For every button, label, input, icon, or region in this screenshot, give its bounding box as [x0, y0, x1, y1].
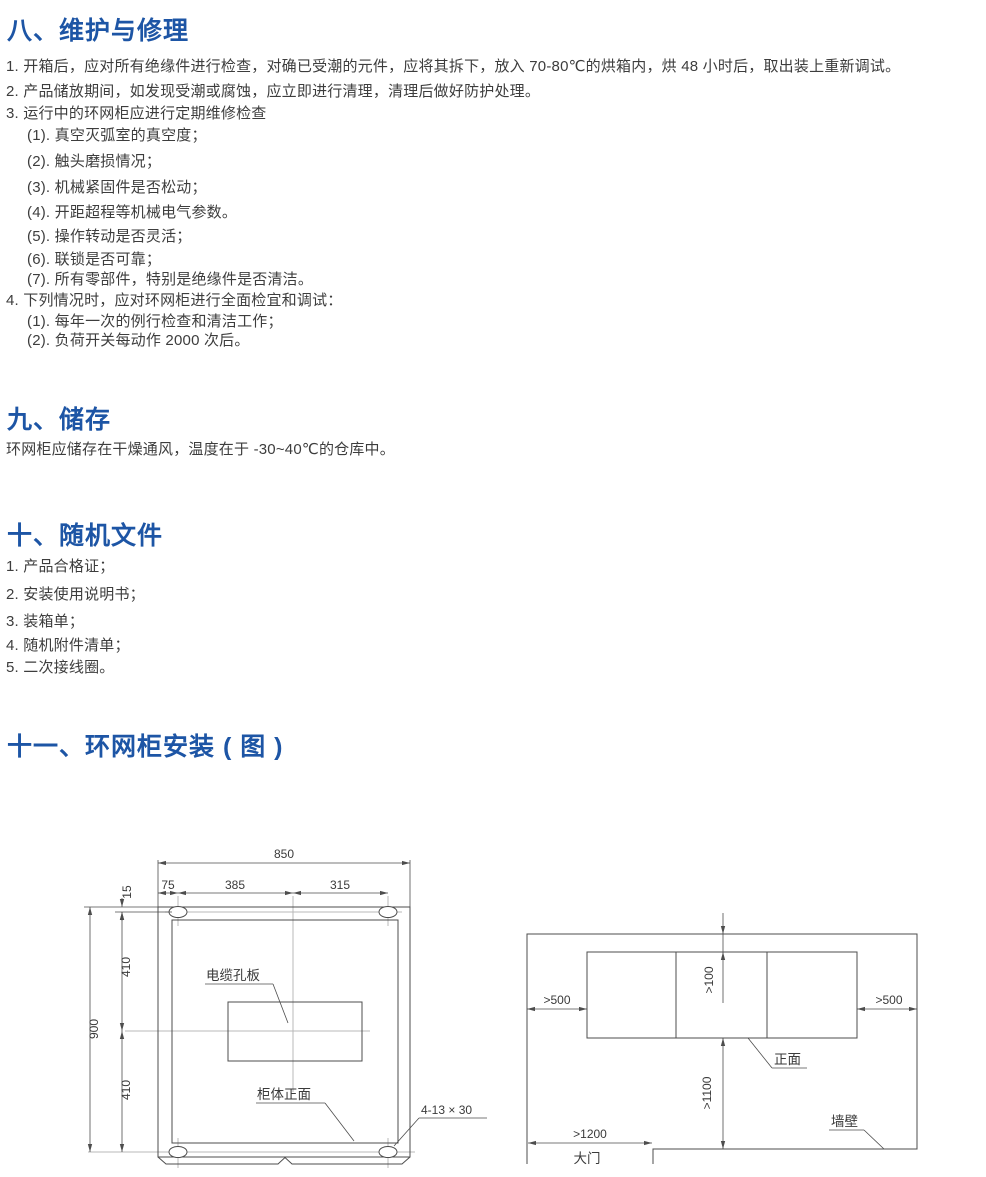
cabinet-base — [158, 1157, 410, 1164]
cabinet-outline — [158, 907, 410, 1165]
dim-left-clearance: >500 — [543, 993, 570, 1007]
label-wall: 墙壁 — [831, 1114, 858, 1129]
label-front: 正面 — [774, 1052, 801, 1067]
text-line: 3. 运行中的环网柜应进行定期维修检查 — [6, 104, 266, 123]
leader-lines — [748, 1038, 884, 1149]
dimension-lines — [527, 913, 917, 1149]
manual-page: 八、维护与修理 1. 开箱后，应对所有绝缘件进行检查，对确已受潮的元件，应将其拆… — [0, 0, 986, 1177]
dim-15: 15 — [120, 885, 134, 899]
list-item: 3. 装箱单； — [6, 612, 84, 631]
text-line: 1. 开箱后，应对所有绝缘件进行检查，对确已受潮的元件，应将其拆下，放入 70-… — [6, 57, 900, 76]
list-item: 2. 安装使用说明书； — [6, 585, 145, 604]
dim-410-top: 410 — [119, 957, 133, 977]
dim-75: 75 — [161, 878, 175, 892]
section-8-title: 八、维护与修理 — [7, 11, 189, 47]
mounting-slot — [379, 907, 397, 918]
mounting-slot — [379, 1147, 397, 1158]
label-cabinet-front: 柜体正面 — [257, 1087, 311, 1102]
list-item: (7). 所有零部件，特别是绝缘件是否清洁。 — [27, 270, 313, 289]
list-item: (2). 触头磨损情况； — [27, 152, 161, 171]
dim-410-bottom: 410 — [119, 1080, 133, 1100]
list-item: 4. 随机附件清单； — [6, 636, 130, 655]
list-item: 5. 二次接线圈。 — [6, 658, 114, 677]
list-item: (2). 负荷开关每动作 2000 次后。 — [27, 331, 250, 350]
section-9-body: 环网柜应储存在干燥通风，温度在于 -30~40℃的仓库中。 — [6, 440, 395, 459]
list-item: (4). 开距超程等机械电气参数。 — [27, 203, 237, 222]
dim-back-clearance: >100 — [702, 966, 716, 993]
section-10-title: 十、随机文件 — [7, 516, 163, 552]
label-door: 大门 — [574, 1151, 601, 1166]
list-item: (6). 联锁是否可靠； — [27, 250, 161, 269]
list-item: (3). 机械紧固件是否松动； — [27, 178, 207, 197]
section-11-title: 十一、环网柜安装 ( 图 ) — [7, 727, 284, 763]
dim-front-clearance: >1100 — [700, 1076, 714, 1109]
text-line: 2. 产品储放期间，如发现受潮或腐蚀，应立即进行清理，清理后做好防护处理。 — [6, 82, 540, 101]
leader-lines — [205, 984, 487, 1146]
list-item: (1). 真空灭弧室的真空度； — [27, 126, 207, 145]
dim-right-clearance: >500 — [875, 993, 902, 1007]
list-item: (1). 每年一次的例行检查和清洁工作； — [27, 312, 283, 331]
dim-315: 315 — [330, 878, 350, 892]
dim-900: 900 — [87, 1019, 101, 1039]
dim-850: 850 — [274, 847, 294, 861]
label-slot-spec: 4-13 × 30 — [421, 1103, 472, 1117]
section-9-title: 九、储存 — [7, 400, 111, 436]
installation-drawing-room-layout: >100 >1100 >500 >500 >1200 大门 正面 墙壁 — [520, 900, 940, 1177]
dim-385: 385 — [225, 878, 245, 892]
cabinet-row — [587, 952, 857, 1038]
list-item: (5). 操作转动是否灵活； — [27, 227, 191, 246]
centerlines — [88, 896, 415, 1168]
text-line: 4. 下列情况时，应对环网柜进行全面检宜和调试： — [6, 291, 342, 310]
installation-drawing-cabinet-dimensions: 850 75 385 315 15 410 900 410 电缆孔板 柜体正面 … — [80, 840, 490, 1177]
list-item: 1. 产品合格证； — [6, 557, 114, 576]
dim-door-width: >1200 — [573, 1127, 607, 1141]
label-cable-plate: 电缆孔板 — [206, 968, 260, 983]
mounting-slot — [169, 1147, 187, 1158]
